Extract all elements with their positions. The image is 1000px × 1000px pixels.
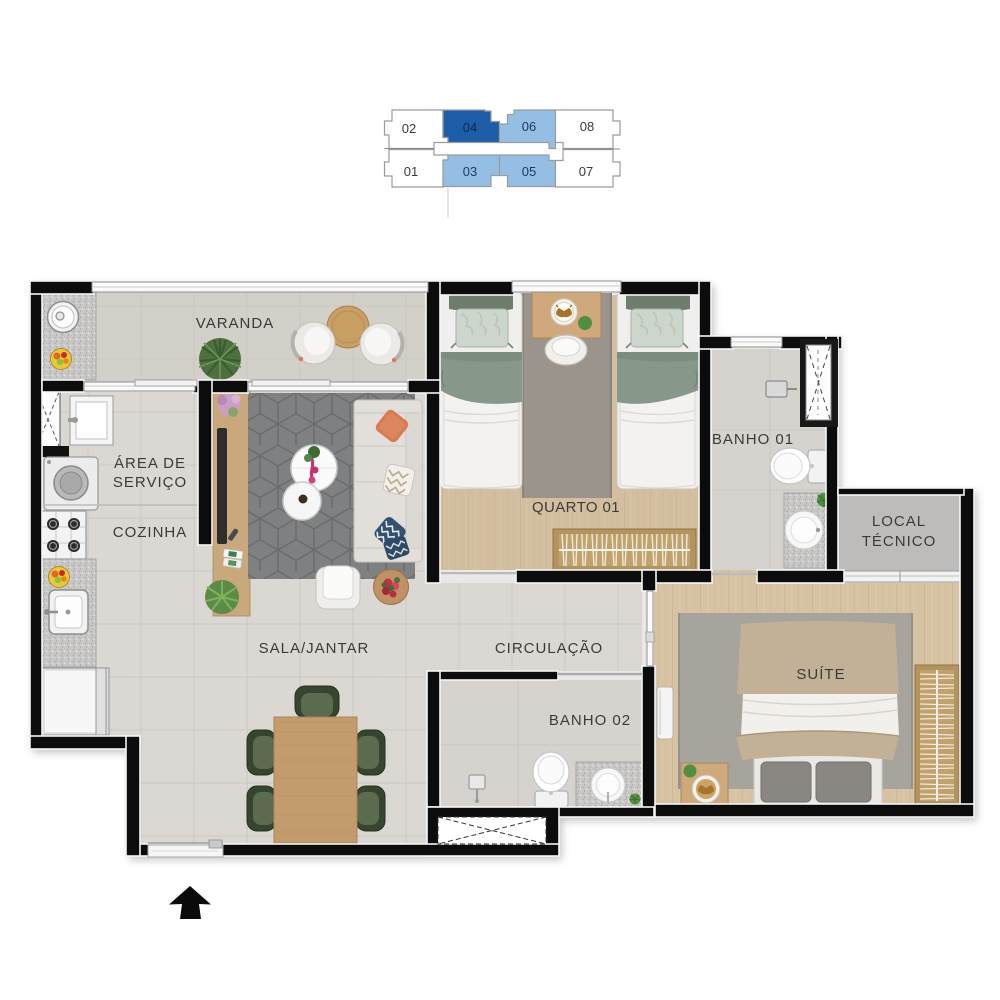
svg-text:06: 06 (522, 119, 536, 134)
svg-text:07: 07 (579, 164, 593, 179)
svg-text:SERVIÇO: SERVIÇO (113, 474, 187, 491)
svg-text:TÉCNICO: TÉCNICO (862, 533, 937, 550)
svg-text:BANHO 01: BANHO 01 (712, 431, 794, 448)
svg-text:04: 04 (463, 120, 477, 135)
svg-text:ÁREA DE: ÁREA DE (114, 455, 186, 472)
svg-text:VARANDA: VARANDA (196, 315, 274, 332)
svg-text:LOCAL: LOCAL (872, 513, 926, 530)
svg-text:03: 03 (463, 164, 477, 179)
svg-text:QUARTO 01: QUARTO 01 (532, 499, 620, 516)
svg-text:COZINHA: COZINHA (113, 524, 188, 541)
svg-text:08: 08 (580, 119, 594, 134)
svg-text:CIRCULAÇÃO: CIRCULAÇÃO (495, 640, 603, 657)
svg-text:02: 02 (402, 121, 416, 136)
svg-text:BANHO 02: BANHO 02 (549, 712, 631, 729)
svg-text:01: 01 (404, 164, 418, 179)
svg-text:05: 05 (522, 164, 536, 179)
svg-text:SALA/JANTAR: SALA/JANTAR (259, 640, 370, 657)
svg-text:SUÍTE: SUÍTE (796, 666, 845, 683)
